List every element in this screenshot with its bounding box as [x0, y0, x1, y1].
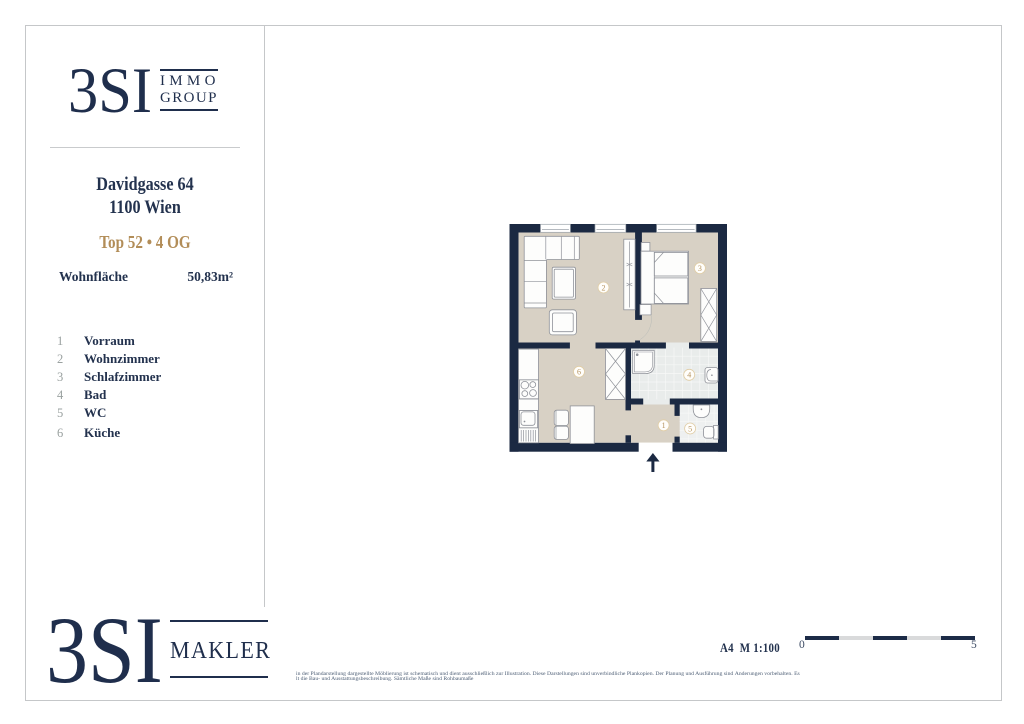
svg-text:1: 1 — [662, 421, 666, 430]
svg-text:5: 5 — [688, 424, 692, 433]
svg-text:3: 3 — [698, 264, 702, 273]
svg-text:2: 2 — [602, 283, 606, 292]
svg-text:6: 6 — [577, 368, 581, 377]
svg-text:4: 4 — [687, 371, 691, 380]
